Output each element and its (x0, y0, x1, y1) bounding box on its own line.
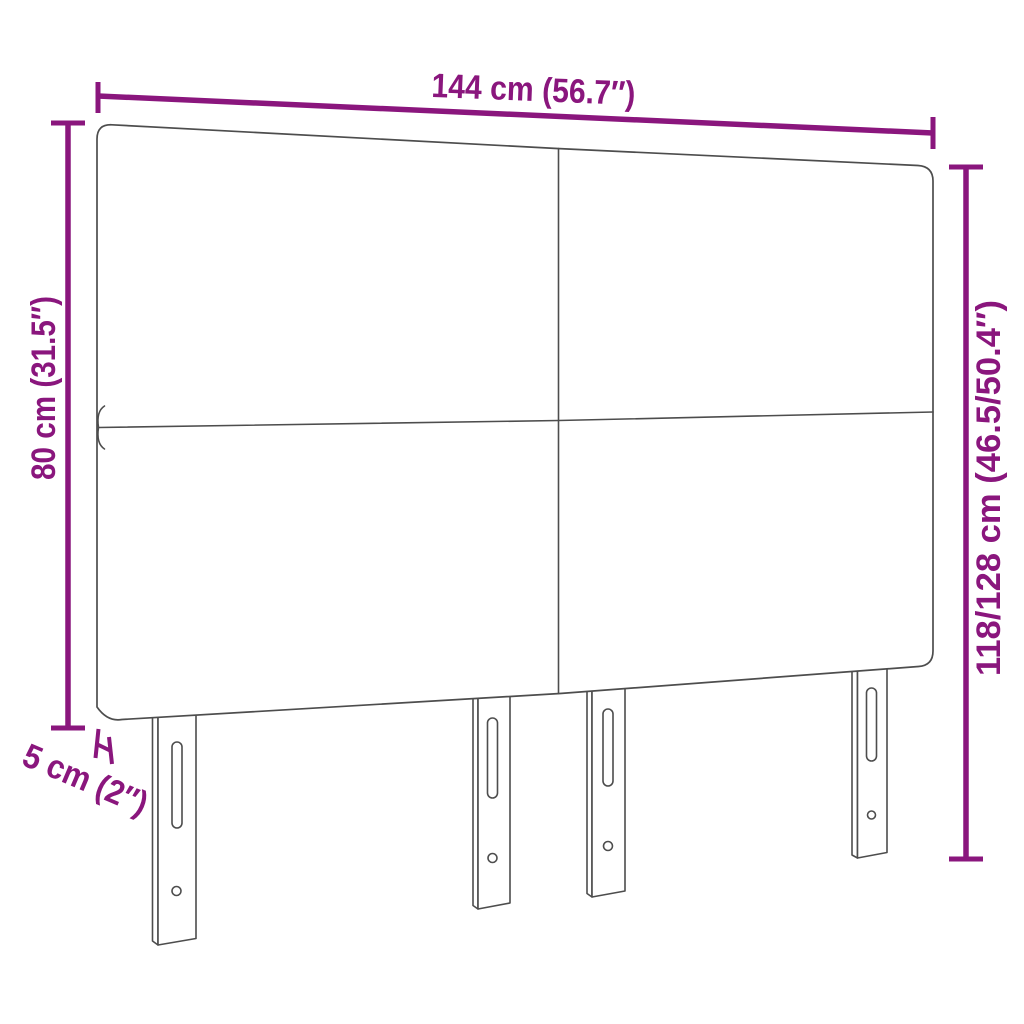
leg-side-face (852, 660, 858, 858)
headboard-dimension-diagram: 144 cm (56.7″) 80 cm (31.5″) 118/128 cm … (0, 0, 1024, 1024)
depth-dimension: 5 cm (2″) (17, 729, 153, 823)
headboard-leg-3 (587, 676, 625, 897)
headboard-outline (97, 125, 933, 720)
height-right-dimension-label: 118/128 cm (46.5/50.4″) (970, 300, 1008, 676)
leg-screw-hole (488, 854, 497, 863)
headboard-leg-1 (153, 706, 197, 945)
height-left-dimension-label: 80 cm (31.5″) (25, 296, 63, 480)
leg-mounting-slot (488, 718, 498, 798)
leg-mounting-slot (867, 688, 877, 761)
depth-dimension-label: 5 cm (2″) (17, 737, 153, 824)
leg-screw-hole (868, 811, 876, 819)
height-right-dimension: 118/128 cm (46.5/50.4″) (949, 167, 1008, 859)
leg-mounting-slot (603, 709, 613, 786)
leg-screw-hole (604, 842, 613, 851)
dimension-diagram-page: 144 cm (56.7″) 80 cm (31.5″) 118/128 cm … (0, 0, 1024, 1024)
width-dimension-label: 144 cm (56.7″) (431, 67, 636, 113)
headboard-leg-4 (852, 658, 887, 858)
headboard-leg-2 (473, 684, 510, 909)
leg-screw-hole (172, 887, 181, 896)
height-left-dimension: 80 cm (31.5″) (25, 123, 85, 728)
leg-mounting-slot (172, 742, 182, 828)
leg-side-face (153, 708, 159, 945)
headboard (97, 125, 933, 945)
